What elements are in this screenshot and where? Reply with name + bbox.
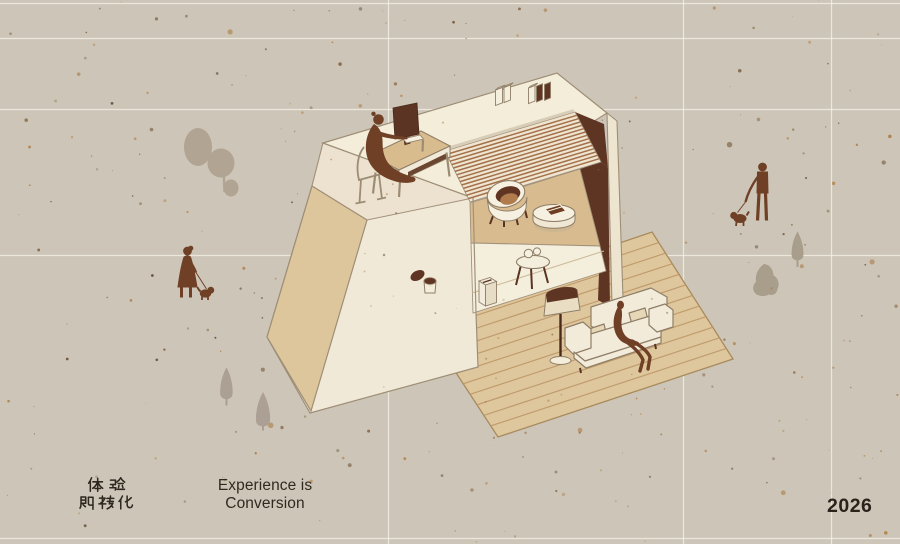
round-drum-table (533, 205, 575, 233)
cjk-glyph-yan (109, 476, 126, 493)
title-cjk-line2 (79, 494, 134, 511)
storage-box (479, 278, 497, 307)
title-english-line1: Experience is (218, 477, 312, 495)
poster: Experience is Conversion 2026 (0, 0, 900, 544)
title-cjk (79, 476, 134, 511)
title-english-line2: Conversion (218, 495, 312, 513)
poster-illustration (0, 0, 900, 544)
year-label: 2026 (827, 495, 872, 518)
title-cjk-line1 (87, 476, 126, 493)
cjk-glyph-zhuan (98, 494, 115, 511)
title-english: Experience is Conversion (218, 477, 312, 512)
cjk-glyph-hua (117, 494, 134, 511)
cjk-glyph-ti (87, 476, 104, 493)
cjk-glyph-ji (79, 494, 96, 511)
